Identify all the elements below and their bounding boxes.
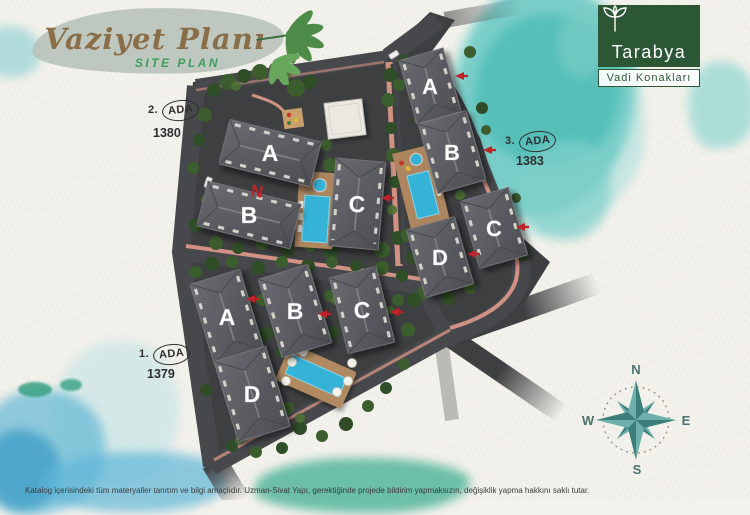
- building-label: A: [219, 304, 236, 330]
- disclaimer-text: Katalog içerisindeki tüm materyaller tan…: [25, 486, 725, 495]
- building-label: C: [349, 191, 366, 217]
- brand-logo: Tarabya: [598, 5, 700, 67]
- block-label-3ada: 3. ADA: [505, 131, 556, 152]
- parcel-number-1383: 1383: [516, 154, 544, 168]
- building-label: A: [422, 74, 438, 99]
- parcel-number-1380: 1380: [153, 126, 181, 140]
- building-2ada-c[interactable]: C: [328, 158, 385, 250]
- building-label: B: [241, 202, 258, 228]
- block-word-circled: ADA: [161, 98, 200, 123]
- parcel-number-1379: 1379: [147, 367, 175, 381]
- page-subtitle: SITE PLAN: [40, 56, 220, 70]
- site-plan-page: A B C A: [0, 0, 750, 500]
- block-number: 2.: [148, 104, 158, 116]
- building-label: A: [262, 140, 279, 166]
- building-label: D: [244, 381, 261, 407]
- block-word-circled: ADA: [518, 129, 557, 154]
- block-number: 3.: [505, 135, 515, 147]
- building-label: C: [354, 297, 371, 323]
- block-word-circled: ADA: [152, 342, 191, 367]
- building-label: B: [444, 140, 460, 165]
- block-number: 1.: [139, 348, 149, 360]
- block-label-1ada: 1. ADA: [139, 344, 190, 365]
- page-title: Vaziyet Planı: [40, 22, 270, 56]
- playground: [282, 108, 304, 130]
- building-label: C: [486, 216, 502, 241]
- block-label-2ada: 2. ADA: [148, 100, 199, 121]
- brand-tagline: Vadi Konakları: [598, 69, 700, 87]
- facility-building: [324, 99, 366, 139]
- building-label: B: [287, 298, 304, 324]
- building-label: D: [432, 245, 448, 270]
- monstera-leaf-icon: [238, 0, 328, 85]
- sprout-leaves-icon: [598, 5, 632, 35]
- brand-name: Tarabya: [612, 42, 687, 63]
